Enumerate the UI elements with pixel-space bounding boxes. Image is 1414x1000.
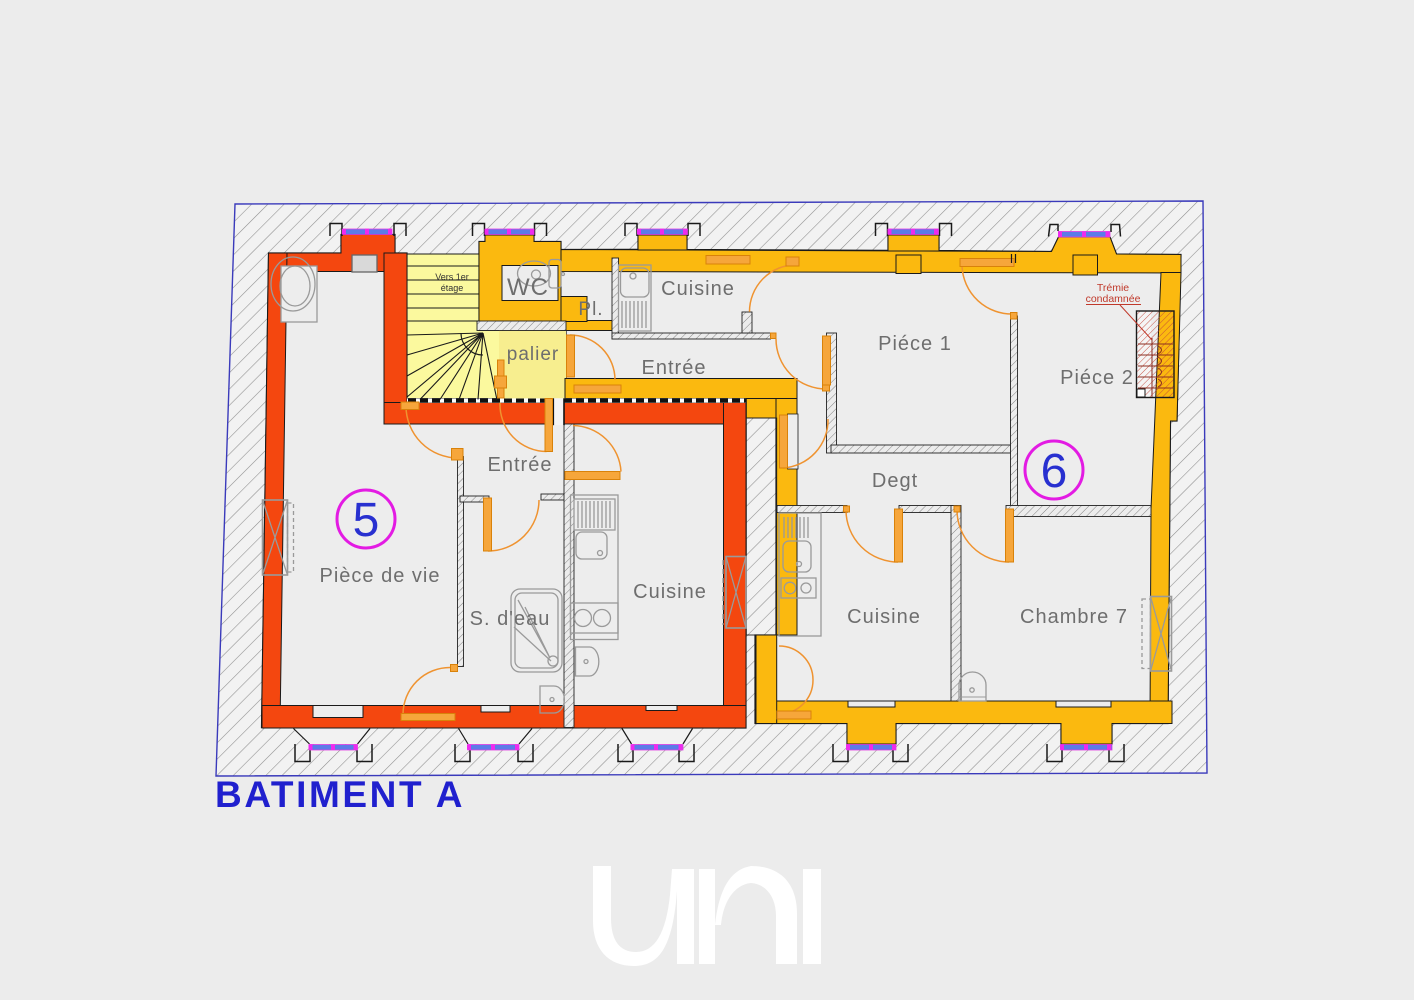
svg-text:6: 6: [1041, 445, 1068, 498]
svg-text:Pl.: Pl.: [578, 299, 603, 320]
svg-text:étage: étage: [441, 283, 464, 293]
svg-text:Cuisine: Cuisine: [661, 278, 735, 300]
svg-text:Chambre 7: Chambre 7: [1020, 606, 1128, 628]
svg-text:Entrée: Entrée: [642, 357, 707, 379]
svg-text:WC: WC: [507, 274, 549, 301]
svg-text:5: 5: [353, 494, 380, 547]
svg-text:condamnée: condamnée: [1086, 293, 1141, 305]
svg-text:Piéce 1: Piéce 1: [878, 333, 952, 355]
svg-text:BATIMENT A: BATIMENT A: [215, 774, 465, 815]
svg-text:Piéce 2: Piéce 2: [1060, 367, 1134, 389]
svg-text:Degt: Degt: [872, 470, 918, 492]
svg-text:Cuisine: Cuisine: [633, 581, 707, 603]
svg-text:palier: palier: [507, 344, 559, 365]
svg-text:Entrée: Entrée: [488, 454, 553, 476]
svg-text:Cuisine: Cuisine: [847, 606, 921, 628]
svg-text:Vers 1er: Vers 1er: [435, 272, 469, 282]
svg-text:S. d'eau: S. d'eau: [470, 608, 551, 630]
svg-text:Pièce de vie: Pièce de vie: [320, 565, 441, 587]
